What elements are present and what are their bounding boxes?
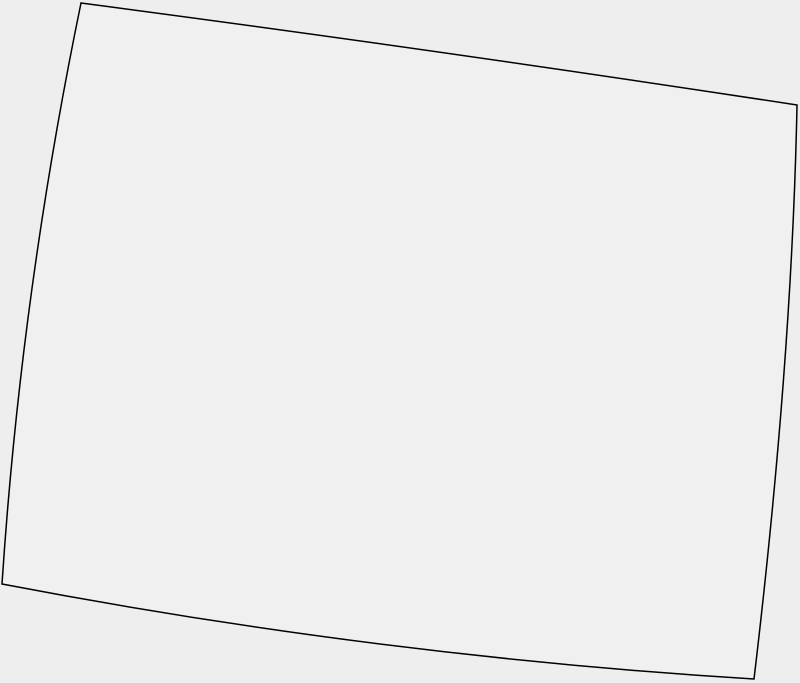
state-outline-shape — [2, 3, 797, 679]
map-stage — [0, 0, 800, 683]
map-canvas — [0, 0, 800, 683]
